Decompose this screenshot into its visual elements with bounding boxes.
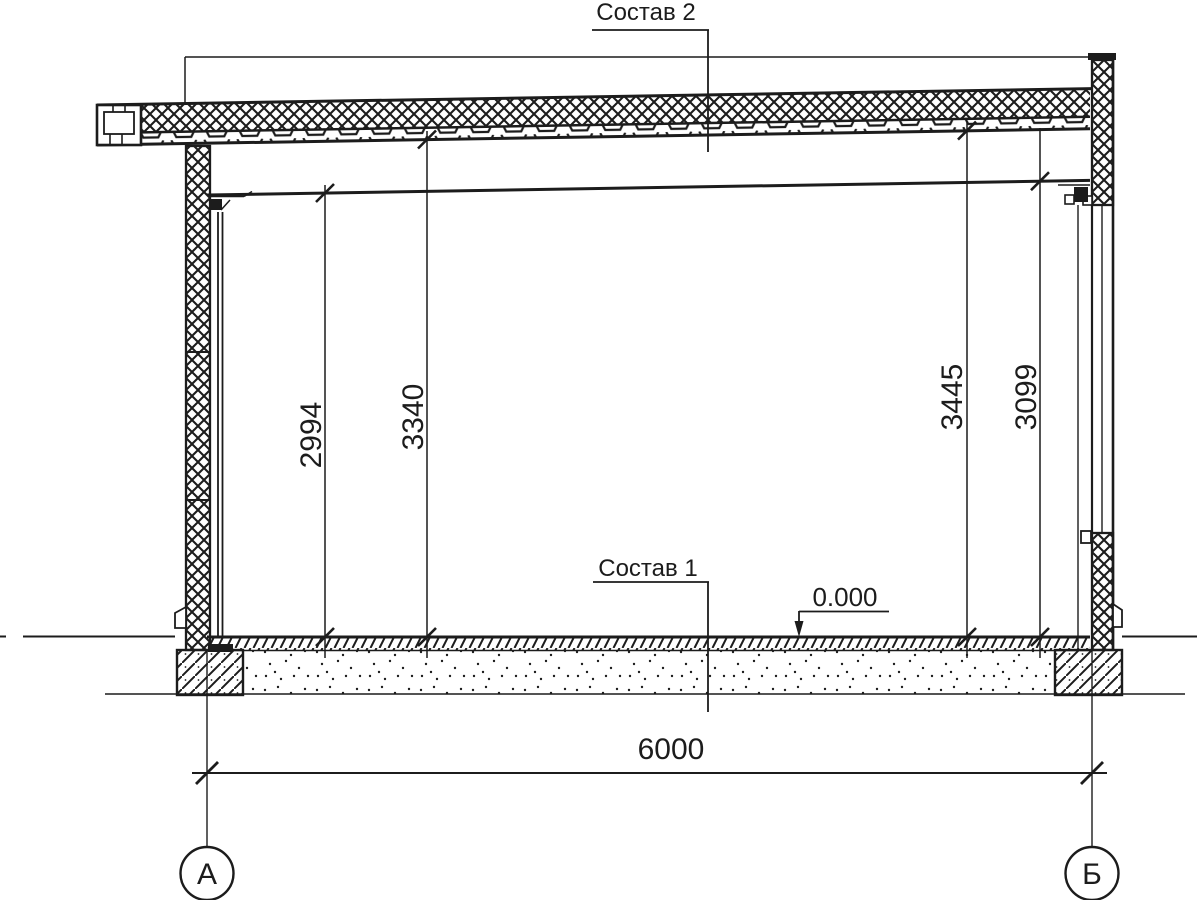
dim-value-3099: 3099 <box>1010 364 1043 431</box>
beam-end-plate-right <box>1074 187 1088 202</box>
right-wall <box>1078 53 1122 650</box>
left-wall <box>175 146 223 650</box>
elevation-mark-arrowhead <box>795 621 804 637</box>
dim-value-3445: 3445 <box>936 364 969 431</box>
floor-slab <box>207 637 1090 652</box>
beam-end-plate-left <box>209 199 222 210</box>
drawing-sheet: Состав 2 Состав 1 0.000 2994 3340 3445 3… <box>0 0 1200 900</box>
floor-composition-label: Состав 1 <box>598 555 698 582</box>
dim-value-3340: 3340 <box>397 384 430 451</box>
roof-assembly <box>97 57 1092 145</box>
foundation-block-right <box>1055 650 1122 695</box>
span-dimension: 6000 <box>192 733 1107 784</box>
axis-label-left: А <box>197 858 217 891</box>
section-drawing: Состав 2 Состав 1 0.000 2994 3340 3445 3… <box>0 0 1200 900</box>
concrete-bedding <box>243 651 1055 694</box>
floor-screed-hatch <box>207 639 1090 651</box>
dim-value-6000: 6000 <box>638 733 705 766</box>
window-sill-detail <box>1081 531 1091 543</box>
left-wall-panel <box>186 146 210 650</box>
base-flashing-right <box>1113 604 1122 627</box>
dim-value-2994: 2994 <box>295 402 328 469</box>
axis-label-right: Б <box>1082 858 1102 891</box>
foundation-block-left <box>177 650 243 695</box>
right-wall-lower-panel <box>1092 533 1113 650</box>
corbel-edge-left <box>221 200 230 210</box>
right-wall-upper-panel <box>1092 60 1113 205</box>
column-base-left <box>208 644 233 652</box>
base-flashing-left <box>175 607 186 628</box>
roof-composition-label: Состав 2 <box>596 0 696 26</box>
elevation-mark-value: 0.000 <box>812 582 877 612</box>
beam-bottom-line <box>207 180 1090 195</box>
corbel-detail-right <box>1065 195 1074 204</box>
ceiling-beam <box>207 180 1090 210</box>
